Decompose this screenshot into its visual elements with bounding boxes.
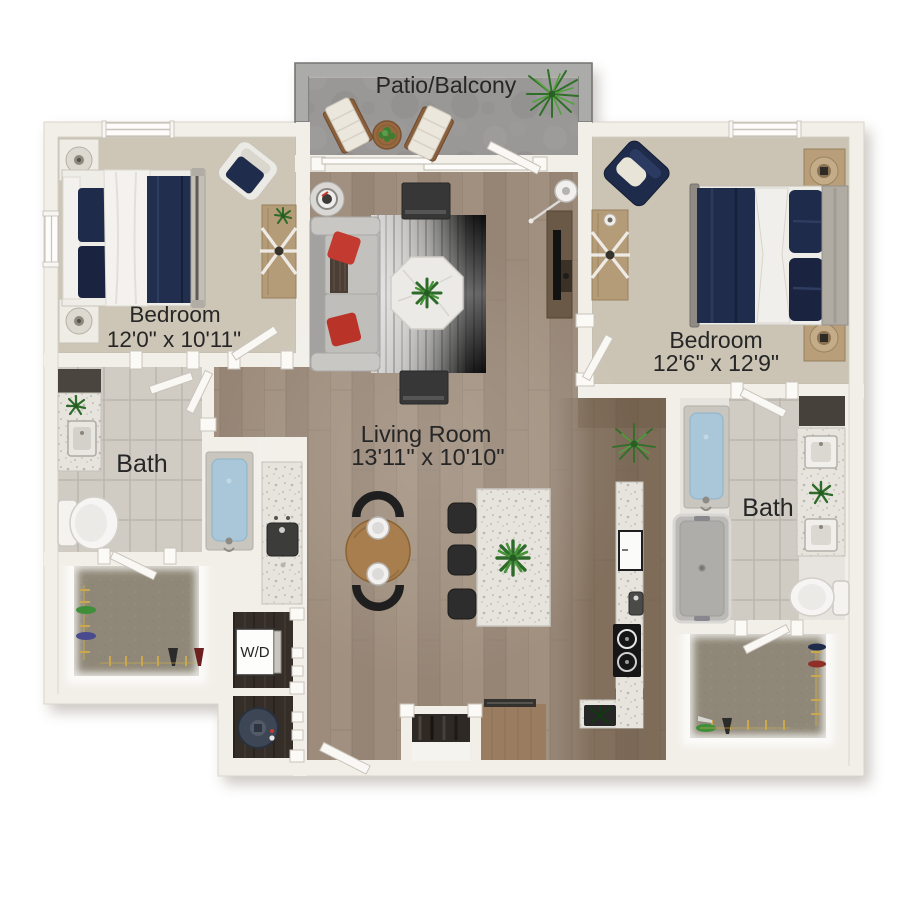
svg-text:12'6" x 12'9": 12'6" x 12'9"	[653, 350, 779, 376]
svg-text:W/D: W/D	[240, 644, 269, 661]
svg-text:Bath: Bath	[116, 450, 167, 478]
svg-text:Bath: Bath	[742, 494, 793, 522]
svg-text:12'0" x 10'11": 12'0" x 10'11"	[107, 327, 241, 352]
svg-text:Patio/Balcony: Patio/Balcony	[376, 72, 517, 98]
svg-text:Bedroom: Bedroom	[129, 302, 220, 327]
svg-text:13'11" x 10'10": 13'11" x 10'10"	[351, 444, 504, 470]
